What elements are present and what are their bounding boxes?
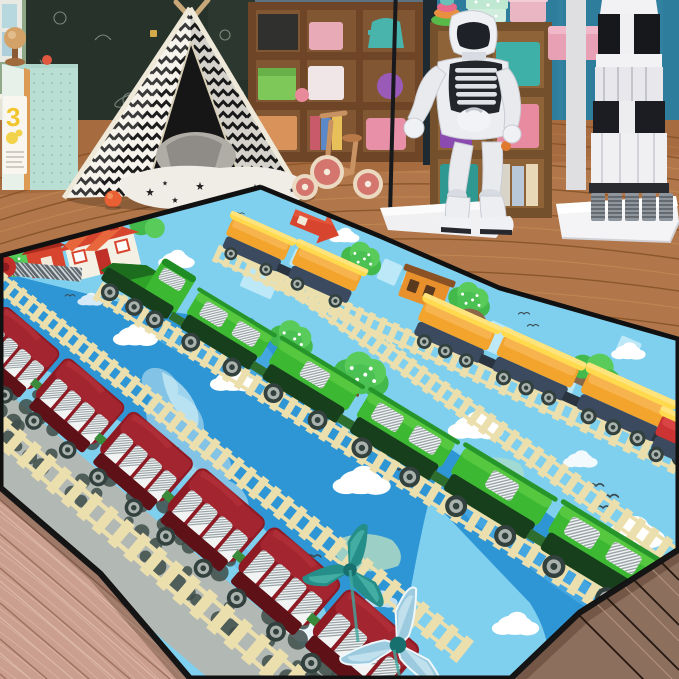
svg-text:3: 3: [6, 102, 20, 132]
